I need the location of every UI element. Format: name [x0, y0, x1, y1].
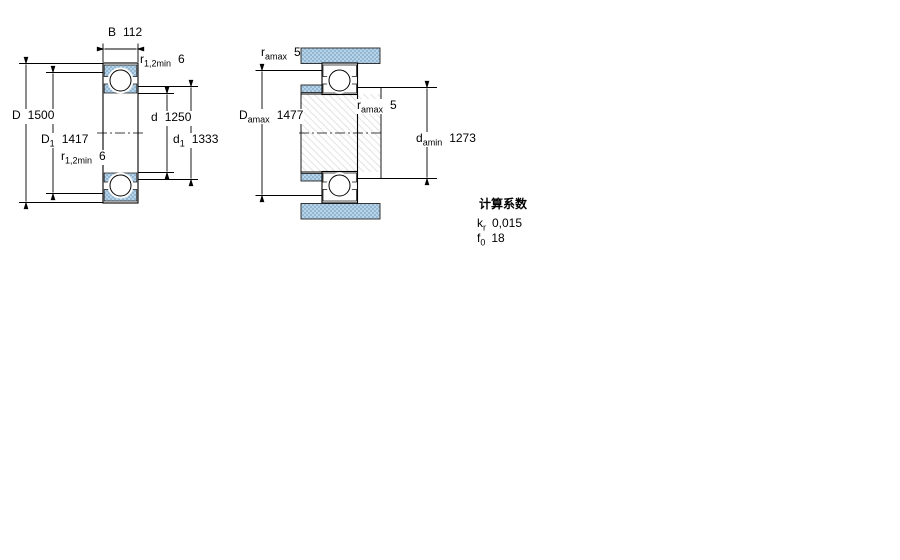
dim-value: 1417: [62, 132, 89, 146]
dim-subscript: amax: [265, 51, 287, 61]
dim-label-B: B112: [107, 26, 143, 41]
dim-subscript: amax: [248, 114, 270, 124]
dim-value: 1250: [165, 110, 192, 124]
factor-value: 18: [491, 231, 504, 245]
dim-label-ra-mid: ramax5: [356, 99, 398, 114]
dim-label-D1: D11417: [40, 133, 89, 148]
dim-label-D: D1500: [11, 109, 55, 124]
dim-label-ra-top: ramax5: [261, 46, 301, 61]
fig2-housing-top: [301, 48, 380, 64]
bearing-drawings-svg: [0, 0, 520, 260]
fig2-shaft-shoulder-top: [301, 85, 322, 93]
dim-subscript: amax: [361, 104, 383, 114]
dim-value: 5: [390, 98, 397, 112]
calculation-factors-title: 计算系数: [479, 195, 527, 212]
dim-symbol: D: [239, 108, 248, 122]
dim-subscript: 1,2min: [65, 155, 92, 165]
dim-value: 1500: [28, 108, 55, 122]
calc-factor-f0: f018: [477, 232, 505, 247]
fig2-shaft-shoulder-bottom: [301, 174, 322, 182]
fig1-ball-bottom: [110, 175, 131, 196]
dim-label-d1: d11333: [172, 133, 219, 148]
fig2-ball-top: [329, 70, 350, 91]
dim-symbol: d: [173, 132, 180, 146]
dim-symbol: B: [108, 25, 116, 39]
screenshot-root: B112 r1,2min6 D1500 D11417 r1,2min6 d125…: [0, 0, 900, 560]
dim-value: 6: [99, 149, 106, 163]
factor-value: 0,015: [492, 216, 522, 230]
fig2-housing-bottom: [301, 204, 380, 220]
factor-subscript: 0: [480, 237, 485, 247]
dim-symbol: D: [41, 132, 50, 146]
fig2-abutment-diagram: [256, 48, 438, 219]
dim-value: 1273: [449, 131, 476, 145]
dim-symbol: d: [151, 110, 158, 124]
dim-subscript: 1,2min: [144, 58, 171, 68]
dim-label-damin: damin1273: [415, 132, 477, 147]
fig1-ball-top: [110, 70, 131, 91]
fig2-ball-bottom: [329, 175, 350, 196]
dim-subscript: 1: [180, 138, 185, 148]
factor-subscript: r: [483, 222, 486, 232]
dim-subscript: amin: [423, 137, 443, 147]
dim-value: 112: [123, 25, 142, 39]
dim-value: 5: [294, 45, 301, 59]
dim-label-Damax: Damax1477: [238, 109, 304, 124]
dim-value: 6: [178, 52, 185, 66]
dim-value: 1333: [192, 132, 219, 146]
dim-subscript: 1: [50, 138, 55, 148]
dim-label-d: d1250: [150, 111, 192, 126]
dim-label-r12-top: r1,2min6: [140, 53, 185, 68]
dim-label-r12-bottom: r1,2min6: [60, 150, 107, 165]
dim-value: 1477: [277, 108, 304, 122]
dim-symbol: d: [416, 131, 423, 145]
dim-symbol: D: [12, 108, 21, 122]
